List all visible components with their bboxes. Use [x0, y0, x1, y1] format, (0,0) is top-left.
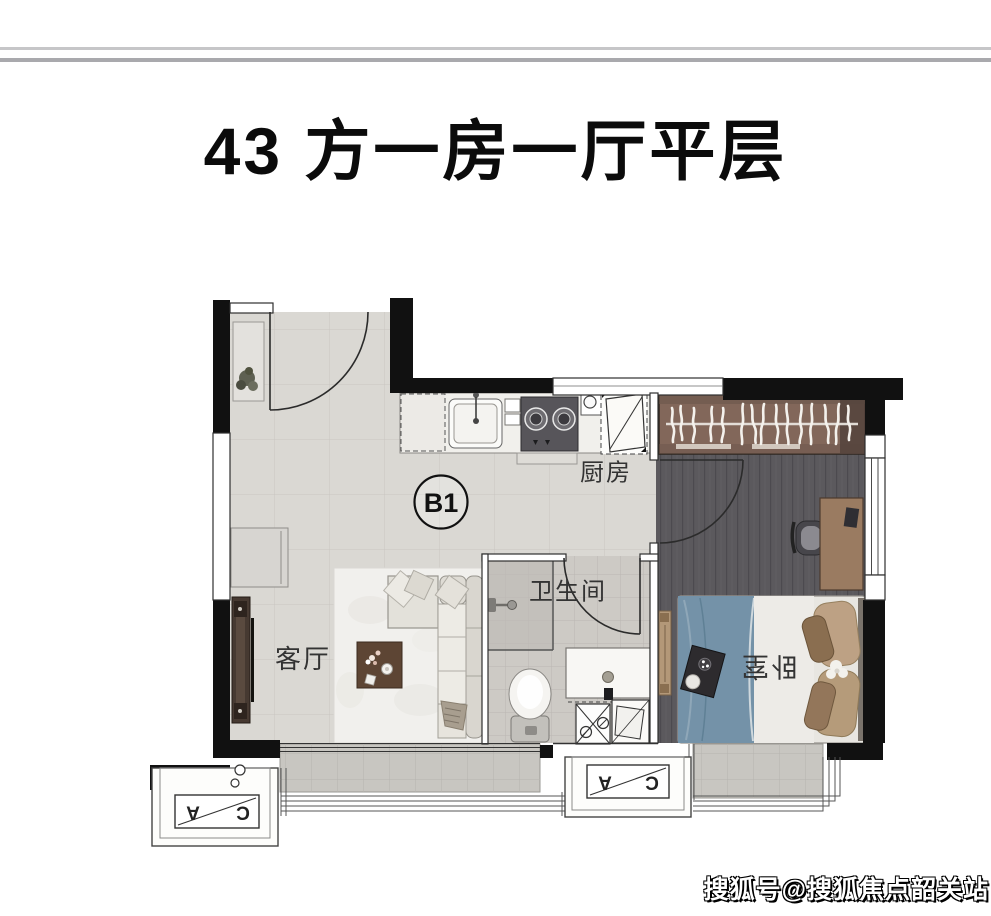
- fridge: [601, 392, 647, 454]
- page: { "header": { "title": "43 方一房一厅平层" }, "…: [0, 0, 991, 916]
- watermark: 搜狐号@搜狐焦点韶关站: [704, 870, 989, 906]
- bedroom-label: 卧室: [740, 651, 798, 681]
- stove: [521, 397, 578, 451]
- range-hood: [517, 453, 577, 464]
- side-cabinet: [231, 528, 288, 587]
- shower-tray: [612, 700, 649, 743]
- unit-badge-label: B1: [424, 488, 459, 518]
- left-window: [213, 433, 230, 600]
- ac-letter-c: C: [236, 802, 250, 823]
- coffee-table: [357, 642, 402, 688]
- ac-platform-left: A C: [152, 765, 278, 846]
- ac-letter-a-2: A: [598, 772, 612, 793]
- tv-icon: [251, 618, 254, 702]
- bedroom-window: [865, 435, 885, 600]
- kitchen-counter: [400, 392, 650, 464]
- bedside-console: [659, 611, 671, 695]
- toilet: [509, 669, 551, 742]
- ac-letter-c-2: C: [645, 772, 659, 793]
- counter-optional-section: [401, 394, 445, 451]
- living-label: 客厅: [275, 644, 331, 674]
- washing-machine: [576, 704, 610, 744]
- entry-cabinet: [233, 322, 264, 401]
- kitchen-window: [553, 378, 723, 395]
- sofa-throw: [441, 701, 467, 730]
- ac-platform-middle: A C: [565, 757, 691, 817]
- bathroom-label: 卫生间: [529, 579, 607, 606]
- kitchen-sink: [449, 392, 502, 448]
- entry-lintel: [230, 303, 273, 313]
- wardrobe: [659, 394, 865, 454]
- kitchen-label: 厨房: [580, 460, 632, 487]
- desk: [820, 498, 863, 590]
- bathroom-sink: [566, 648, 650, 700]
- ac-letter-a: A: [186, 802, 200, 823]
- floor-plan: A C A C B1 厨房 卫生间 客厅 卧室: [0, 0, 991, 916]
